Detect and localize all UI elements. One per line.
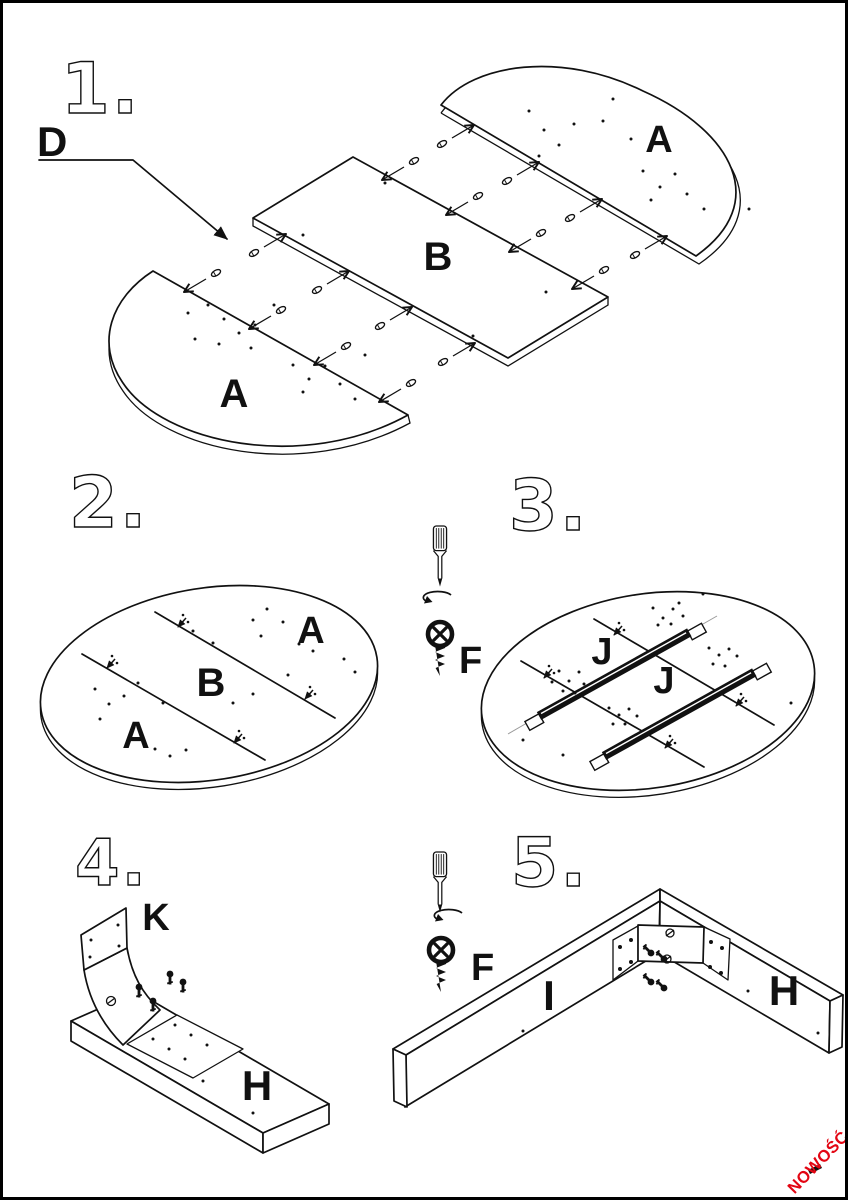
step-3-underside-rails: 3. J J [467, 465, 829, 820]
part-label-j-top: J [591, 631, 612, 673]
step-4-number: 4. [75, 827, 148, 901]
fastener-label-f: F [471, 947, 494, 989]
new-badge-text: NOWOŚĆ [784, 1127, 848, 1197]
step-1-number: 1. [61, 48, 140, 130]
screw-icon [428, 622, 452, 676]
instruction-sheet: 1. D A B A 2. A B A F [0, 0, 848, 1200]
part-label-a-bottom: A [220, 372, 249, 416]
part-label-k: K [142, 897, 170, 939]
screw-icon [180, 979, 187, 993]
screw-icon [429, 938, 453, 992]
oval-tabletop-underside [467, 569, 829, 813]
part-label-b: B [424, 235, 453, 279]
tool-set-step5: F [429, 852, 494, 992]
tabletop-half-a-bottom [109, 271, 410, 454]
step-1-exploded-top: 1. D A B A [37, 48, 749, 454]
rotation-arrow-icon [423, 592, 451, 604]
part-label-b: B [197, 661, 226, 705]
screw-icon [641, 972, 656, 987]
part-label-a-top: A [645, 119, 672, 161]
part-label-h: H [769, 967, 799, 1014]
rotation-arrow-icon [434, 910, 462, 922]
step-5-apron-corner: 5. I H [393, 824, 843, 1107]
tool-set-step3: F [423, 526, 482, 682]
step-4-leg-bracket: 4. K H [71, 827, 329, 1153]
screwdriver-icon [433, 852, 446, 911]
step-2-number: 2. [69, 462, 148, 544]
screwdriver-icon [433, 526, 446, 585]
fastener-label-f: F [459, 640, 482, 682]
apron-board-h [659, 889, 843, 1053]
part-label-a-top: A [297, 610, 324, 652]
step-5-number: 5. [511, 824, 588, 903]
assembly-diagram: 1. D A B A 2. A B A F [3, 3, 848, 1200]
part-label-a-bottom: A [122, 715, 149, 757]
part-label-i: I [543, 972, 555, 1019]
screw-icon [167, 971, 174, 985]
part-label-j-bottom: J [653, 660, 674, 702]
dowel-leader-line [39, 160, 227, 239]
screw-icon [654, 978, 669, 993]
new-badge: NOWOŚĆ [784, 1127, 848, 1197]
step-2-assembled-top: 2. A B A [26, 462, 392, 812]
part-label-d: D [37, 118, 67, 165]
step-3-number: 3. [509, 465, 588, 547]
part-label-h: H [242, 1062, 272, 1109]
apron-board-i [393, 889, 660, 1107]
